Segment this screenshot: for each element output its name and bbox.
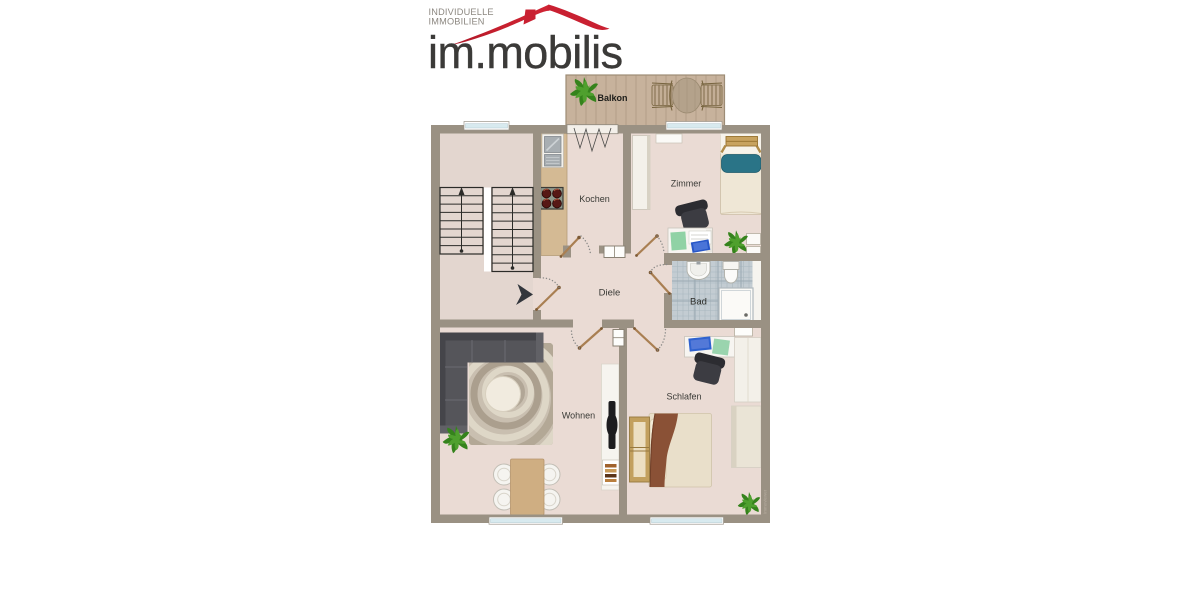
svg-text:Schlafen: Schlafen bbox=[666, 392, 701, 402]
svg-text:Balkon: Balkon bbox=[597, 93, 627, 103]
svg-text:Immoviewer: Immoviewer bbox=[763, 489, 768, 514]
svg-text:Bad: Bad bbox=[690, 297, 707, 308]
svg-text:im.mobilis: im.mobilis bbox=[428, 27, 623, 78]
svg-text:Diele: Diele bbox=[599, 288, 621, 299]
svg-text:IMMOBILIEN: IMMOBILIEN bbox=[429, 16, 485, 26]
svg-text:Kochen: Kochen bbox=[579, 194, 610, 204]
svg-text:Zimmer: Zimmer bbox=[671, 179, 702, 189]
svg-text:Wohnen: Wohnen bbox=[562, 411, 595, 421]
